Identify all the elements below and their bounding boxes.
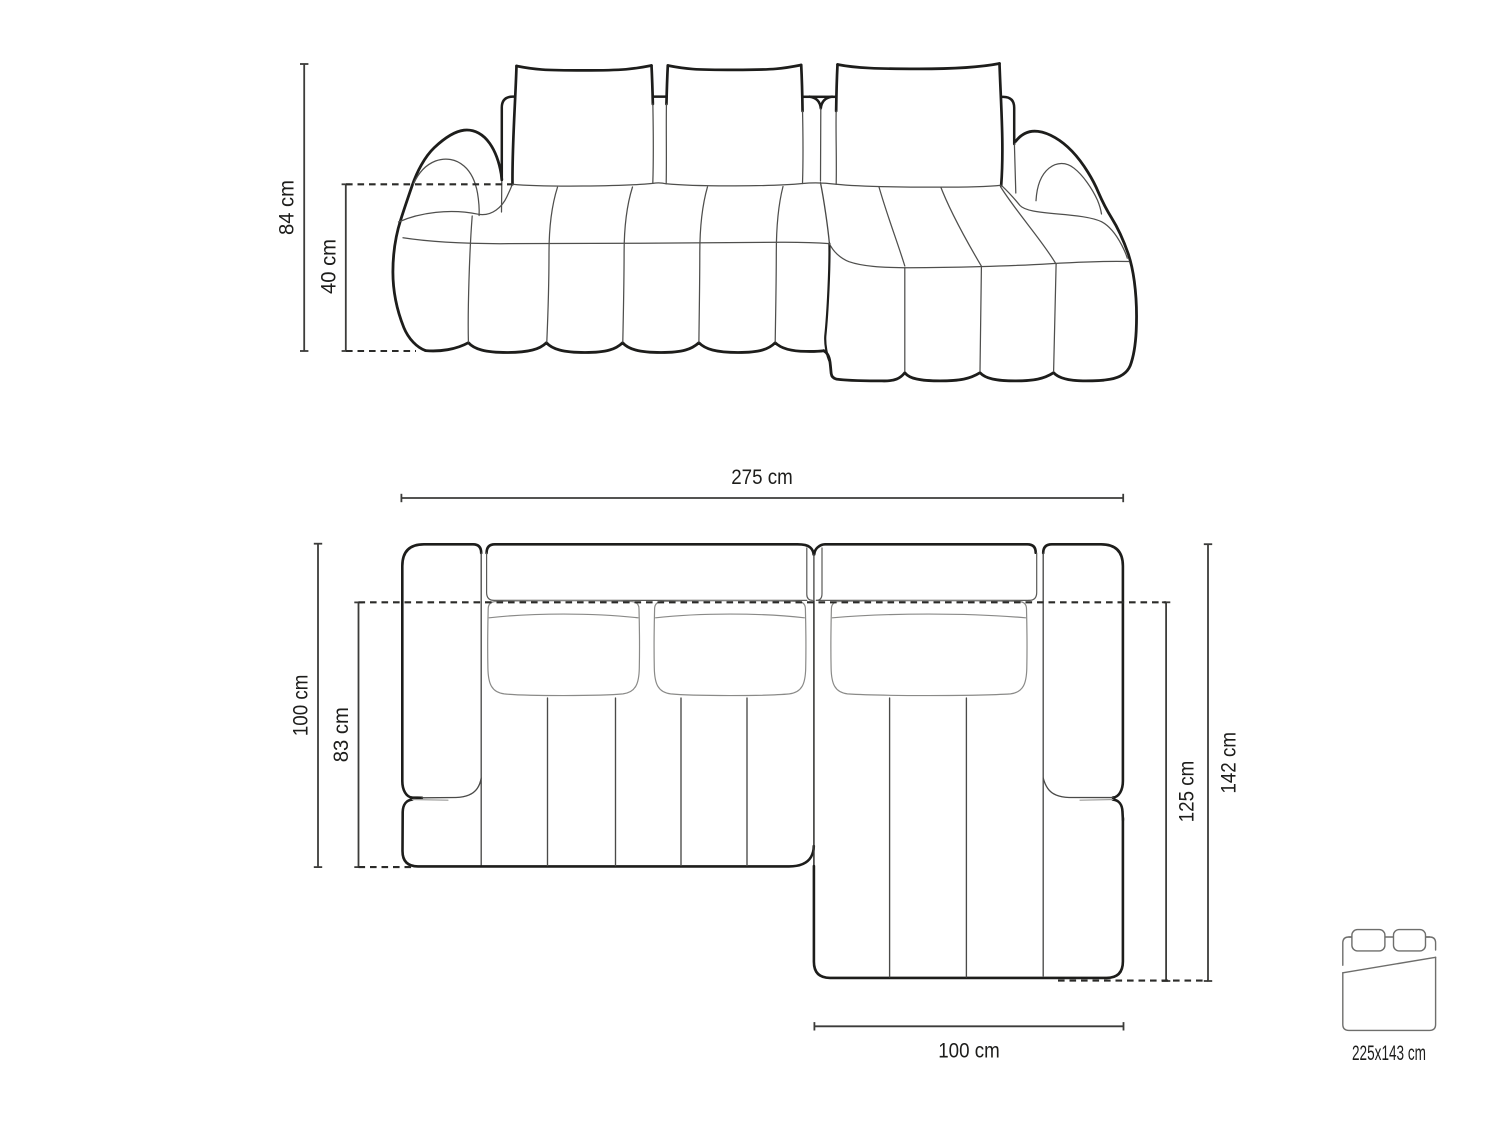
svg-text:84 cm: 84 cm <box>275 180 299 235</box>
svg-text:275 cm: 275 cm <box>731 465 793 489</box>
svg-text:125 cm: 125 cm <box>1175 761 1199 823</box>
svg-text:142 cm: 142 cm <box>1217 732 1241 794</box>
svg-text:100 cm: 100 cm <box>938 1039 1000 1063</box>
svg-text:100 cm: 100 cm <box>289 675 313 737</box>
svg-text:40 cm: 40 cm <box>316 239 340 294</box>
svg-text:225x143 cm: 225x143 cm <box>1352 1041 1426 1065</box>
svg-text:83 cm: 83 cm <box>329 707 353 762</box>
